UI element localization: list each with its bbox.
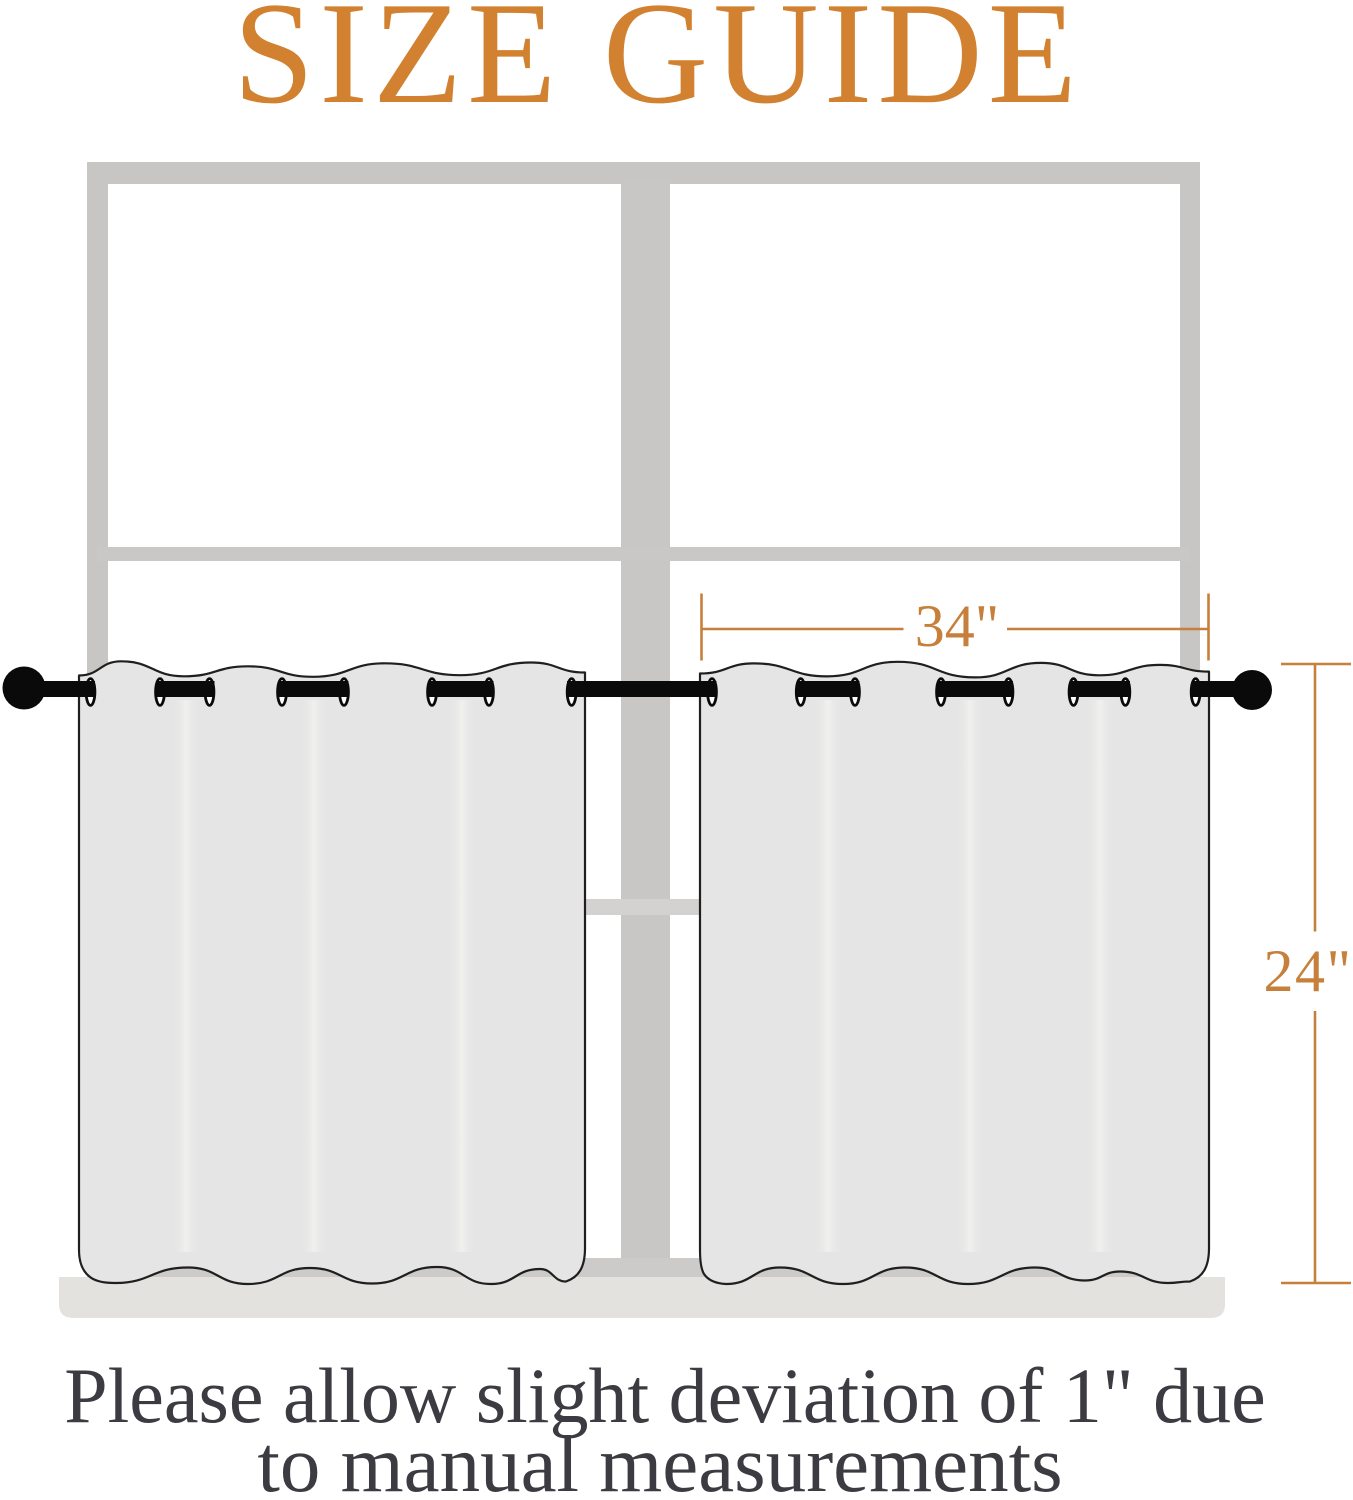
svg-text:24": 24"	[1264, 938, 1353, 1004]
svg-text:SIZE GUIDE: SIZE GUIDE	[233, 0, 1082, 134]
svg-text:to manual measurements: to manual measurements	[257, 1419, 1062, 1500]
svg-text:34": 34"	[915, 593, 1000, 659]
